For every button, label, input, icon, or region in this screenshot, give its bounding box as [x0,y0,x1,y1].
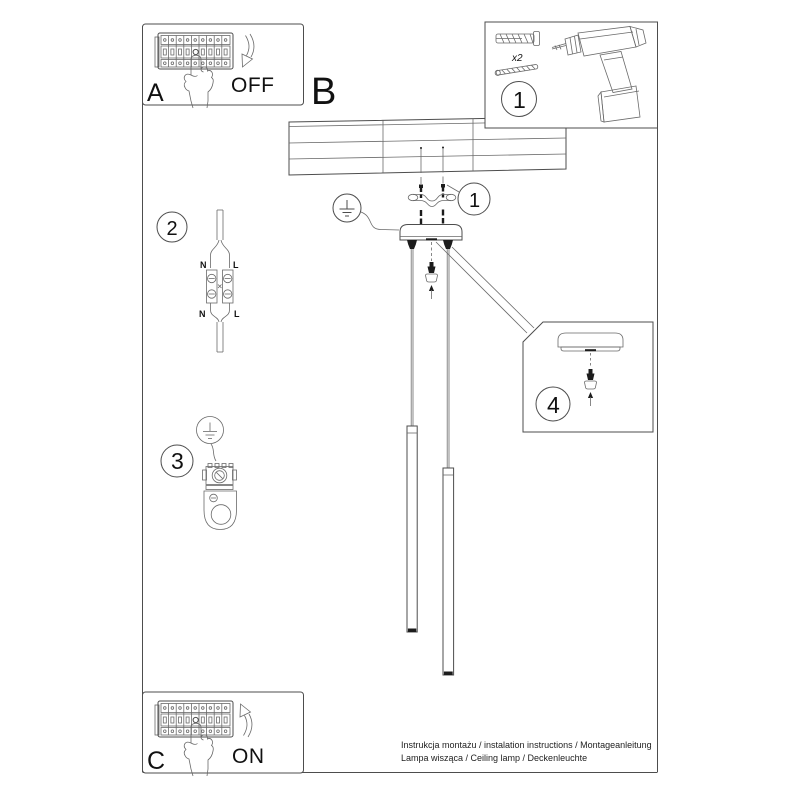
step-box-a: A OFF [143,24,304,108]
step-box-c: C ON [143,692,304,776]
detail-callout-line-1 [436,242,527,333]
svg-text:1: 1 [513,87,526,113]
instruction-drawing: B A OFF x2 1 [0,0,800,800]
ground-symbol-icon [333,194,361,222]
parts-box: x2 1 [485,22,658,128]
wire-label-n-bottom: N [199,309,206,319]
pendant-tube-left [407,426,417,632]
pendant-tube-right [443,468,454,675]
svg-text:3: 3 [171,448,184,474]
step-2-wiring: 2 N L N L [157,210,240,352]
svg-text:2: 2 [167,218,178,240]
mounting-bracket-icon [408,194,456,206]
wire-label-n-top: N [200,260,207,270]
detail-box-4: 4 [523,322,653,432]
anchor-quantity-label: x2 [511,53,523,64]
footer-caption: Instrukcja montażu / instalation instruc… [401,740,652,763]
cable-grip-left [407,240,417,249]
canopy-screw-detail [426,242,438,299]
step-label-b: B [311,71,336,113]
detail-callout-line-2 [452,247,534,328]
step-3-grounding: 3 [161,417,237,530]
box-a-label: A [147,79,164,107]
ground-wire [211,444,216,461]
screws-callout: 1 [447,183,490,215]
mounting-screws [419,177,445,225]
off-label: OFF [231,74,275,97]
footer-line-2: Lampa wisząca / Ceiling lamp / Deckenleu… [401,753,587,763]
wire-label-l-top: L [233,260,239,270]
ground-symbol-small-icon [197,417,224,444]
cable-grip-right [443,240,453,249]
box-c-label: C [147,747,165,775]
footer-line-1: Instrukcja montażu / instalation instruc… [401,740,652,750]
on-label: ON [232,745,265,768]
callout-number-1: 1 [469,190,480,212]
ground-leader-line [361,212,399,230]
wire-label-l-bottom: L [234,309,240,319]
svg-text:4: 4 [547,392,560,418]
canopy-illustration [400,225,462,250]
wiring-diagram [207,210,234,352]
ground-clamp-icon [203,464,237,530]
instruction-sheet: B A OFF x2 1 [0,0,800,800]
